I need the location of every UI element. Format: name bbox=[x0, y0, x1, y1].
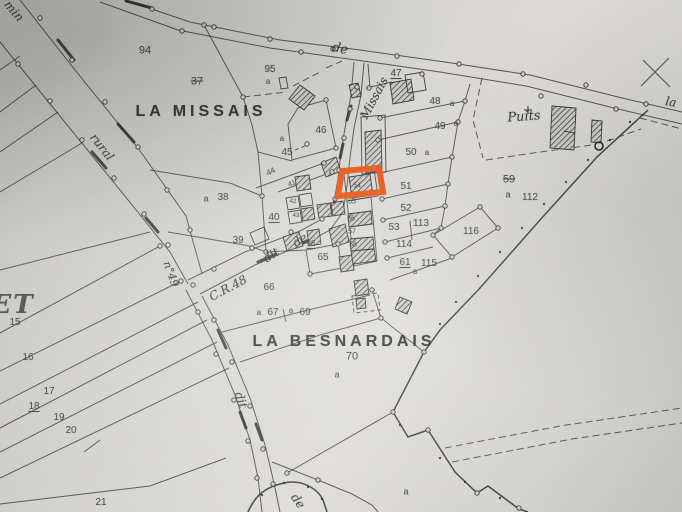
parcel-number: 52 bbox=[400, 204, 411, 214]
road-label: la bbox=[665, 95, 678, 109]
parcel-number: 65 bbox=[317, 253, 328, 263]
parcel-number: 38 bbox=[217, 193, 228, 203]
parcel-number: 43 bbox=[293, 213, 300, 219]
parcel-number: 59 bbox=[503, 175, 515, 186]
parcel-number: 56 bbox=[347, 216, 355, 223]
parcel-number: 41 bbox=[287, 179, 297, 188]
road-label-cr48: C.R.48 bbox=[207, 273, 249, 303]
parcel-number: 94 bbox=[139, 46, 151, 57]
place-name-la-missais: LA MISSAIS bbox=[136, 104, 267, 120]
road-label-chemin: min bbox=[2, 0, 26, 24]
parcel-number: 42 bbox=[290, 199, 297, 205]
parcel-number: 15 bbox=[9, 318, 20, 328]
cadastral-map-photo: minruraln°49C.R.48ditdeMissaisdeladitdeP… bbox=[0, 0, 682, 512]
parcel-number: 47 bbox=[390, 69, 401, 79]
road-label-n49: n°49 bbox=[161, 260, 180, 289]
parcel-number: 50 bbox=[405, 148, 416, 158]
road-label-rural: rural bbox=[88, 131, 116, 162]
road-label: dit bbox=[261, 246, 281, 265]
parcel-number: 95 bbox=[264, 65, 275, 75]
parcel-number: 49 bbox=[434, 122, 445, 132]
parcel-number: 20 bbox=[65, 426, 76, 436]
parcel-number: 51 bbox=[400, 182, 411, 192]
place-name-partial: ET bbox=[0, 292, 35, 318]
parcel-number: 66 bbox=[263, 283, 274, 293]
parcel-number: 40 bbox=[268, 213, 279, 223]
parcel-number: 19 bbox=[53, 413, 64, 423]
parcel-number: 55 bbox=[348, 199, 356, 206]
road-label-missais: Missais bbox=[358, 75, 390, 121]
parcel-number: a bbox=[403, 488, 408, 497]
parcel-number: 115 bbox=[421, 259, 437, 269]
parcel-number: 112 bbox=[522, 193, 538, 203]
parcel-number: 96 bbox=[307, 240, 316, 248]
road-label: de bbox=[289, 491, 307, 510]
place-name-la-besnardais: LA BESNARDAIS bbox=[253, 334, 436, 350]
parcel-number: 114 bbox=[396, 240, 412, 250]
parcel-number: 67 bbox=[267, 308, 278, 318]
road-label: dit bbox=[233, 390, 249, 409]
parcel-number: a bbox=[413, 268, 417, 276]
parcel-number: 48 bbox=[429, 97, 440, 107]
parcel-number: 70 bbox=[346, 352, 358, 363]
parcel-number: 45 bbox=[281, 148, 292, 158]
parcel-number: 54 bbox=[353, 183, 361, 190]
parcel-number: a bbox=[450, 100, 454, 108]
parcel-number: 18 bbox=[28, 402, 39, 412]
parcel-number: 21 bbox=[95, 498, 106, 508]
parcel-number: a bbox=[505, 191, 510, 200]
parcel-number: a bbox=[289, 307, 293, 315]
parcel-number: 69 bbox=[299, 308, 310, 318]
parcel-number: 57 bbox=[348, 229, 356, 236]
parcel-number: 113 bbox=[413, 219, 429, 229]
parcel-number: 44 bbox=[265, 166, 277, 177]
parcel-number: a bbox=[454, 120, 458, 128]
parcel-number: 53 bbox=[388, 223, 399, 233]
parcel-number: 116 bbox=[463, 227, 479, 237]
parcel-number: a bbox=[266, 78, 270, 86]
parcel-number: 37 bbox=[191, 77, 203, 88]
parcel-number: a bbox=[280, 135, 284, 143]
map-labels: minruraln°49C.R.48ditdeMissaisdeladitdeP… bbox=[0, 0, 682, 512]
parcel-number: 16 bbox=[22, 353, 33, 363]
parcel-number: 17 bbox=[43, 387, 54, 397]
road-label: de bbox=[331, 41, 349, 57]
parcel-number: a bbox=[425, 149, 429, 157]
well-label: Puits bbox=[507, 109, 541, 124]
parcel-number: 39 bbox=[232, 236, 243, 246]
parcel-number: 61 bbox=[399, 258, 410, 268]
parcel-number: a bbox=[257, 309, 261, 317]
parcel-number: a bbox=[334, 371, 339, 380]
parcel-number: a bbox=[203, 195, 208, 204]
parcel-number: 46 bbox=[315, 126, 326, 136]
parcel-number: 58 bbox=[349, 242, 357, 249]
